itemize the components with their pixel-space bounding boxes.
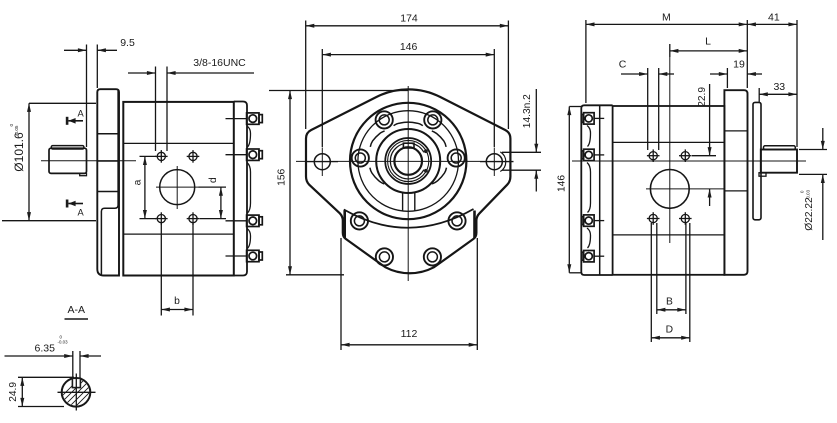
svg-text:41: 41 [768, 11, 780, 23]
svg-text:33: 33 [773, 81, 785, 93]
svg-text:146: 146 [557, 175, 568, 192]
svg-text:d: d [208, 177, 219, 183]
svg-text:-0.03: -0.03 [806, 189, 811, 200]
svg-text:24.9: 24.9 [8, 382, 19, 402]
svg-text:L: L [705, 35, 711, 47]
svg-text:0: 0 [800, 190, 805, 193]
svg-text:A: A [78, 208, 85, 218]
svg-text:D: D [666, 325, 673, 336]
svg-text:3/8-16UNC: 3/8-16UNC [193, 57, 246, 69]
svg-text:156: 156 [277, 168, 288, 185]
svg-text:112: 112 [401, 328, 418, 340]
svg-text:146: 146 [400, 41, 418, 53]
svg-text:a: a [132, 179, 143, 185]
svg-text:174: 174 [400, 12, 418, 24]
svg-text:22.9: 22.9 [697, 87, 708, 107]
svg-text:Ø22.22: Ø22.22 [804, 197, 815, 231]
svg-text:9.5: 9.5 [120, 37, 135, 49]
svg-text:A-A: A-A [68, 304, 86, 316]
svg-text:M: M [662, 11, 671, 23]
svg-text:19: 19 [733, 59, 745, 71]
svg-text:Ø101.6: Ø101.6 [12, 132, 26, 172]
svg-text:-0.05: -0.05 [14, 125, 19, 136]
svg-text:B: B [666, 297, 673, 308]
svg-text:-0.03: -0.03 [58, 340, 69, 345]
svg-text:C: C [619, 59, 627, 71]
svg-text:A: A [78, 109, 85, 119]
svg-text:6.35: 6.35 [35, 342, 56, 354]
svg-text:b: b [174, 296, 180, 307]
svg-text:14.3n.2: 14.3n.2 [522, 94, 533, 128]
